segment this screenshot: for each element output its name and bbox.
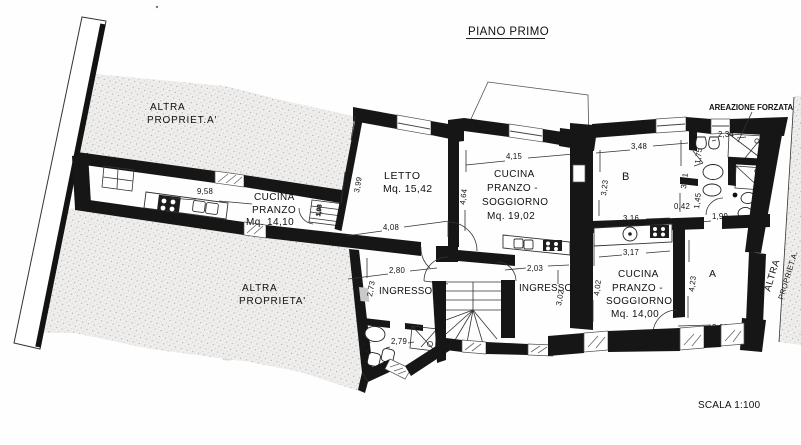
svg-text:B: B (622, 171, 630, 183)
svg-text:3,17: 3,17 (623, 248, 639, 257)
svg-text:PRANZO: PRANZO (252, 205, 296, 216)
svg-text:CUCINA: CUCINA (618, 269, 659, 280)
svg-text:2,03: 2,03 (527, 264, 543, 273)
svg-text:AREAZIONE FORZATA: AREAZIONE FORZATA (709, 103, 794, 112)
svg-text:4,08: 4,08 (383, 223, 399, 232)
svg-text:ALTRA: ALTRA (242, 283, 278, 294)
svg-text:4,15: 4,15 (506, 152, 522, 161)
svg-text:LETTO: LETTO (384, 170, 421, 182)
svg-text:Mq. 14,00: Mq. 14,00 (611, 309, 659, 320)
svg-text:CUCINA: CUCINA (254, 192, 295, 203)
svg-text:Mq. 14,10: Mq. 14,10 (246, 217, 294, 228)
svg-text:2,80: 2,80 (389, 266, 405, 275)
svg-text:PIANO PRIMO: PIANO PRIMO (468, 26, 549, 38)
svg-text:PROPRIETA': PROPRIETA' (239, 296, 306, 307)
svg-text:CUCINA: CUCINA (494, 169, 535, 180)
svg-text:PROPRIET.A': PROPRIET.A' (147, 115, 217, 126)
svg-text:Mq. 19,02: Mq. 19,02 (487, 211, 535, 222)
svg-text:ALTRA: ALTRA (150, 102, 186, 113)
svg-text:SCALA 1:100: SCALA 1:100 (698, 400, 760, 411)
svg-text:A: A (709, 268, 716, 280)
svg-text:PRANZO -: PRANZO - (612, 283, 663, 294)
svg-text:INGRESSO: INGRESSO (379, 286, 432, 297)
svg-text:SOGGIORNO: SOGGIORNO (606, 296, 672, 307)
svg-text:9,58: 9,58 (197, 187, 213, 196)
svg-text:SOGGIORNO: SOGGIORNO (482, 197, 548, 208)
svg-text:2,79: 2,79 (391, 337, 407, 346)
svg-text:PRANZO -: PRANZO - (487, 183, 538, 194)
svg-text:Mq. 15,42: Mq. 15,42 (383, 183, 432, 195)
svg-text:3,48: 3,48 (631, 142, 647, 151)
svg-text:0,42: 0,42 (674, 202, 690, 211)
